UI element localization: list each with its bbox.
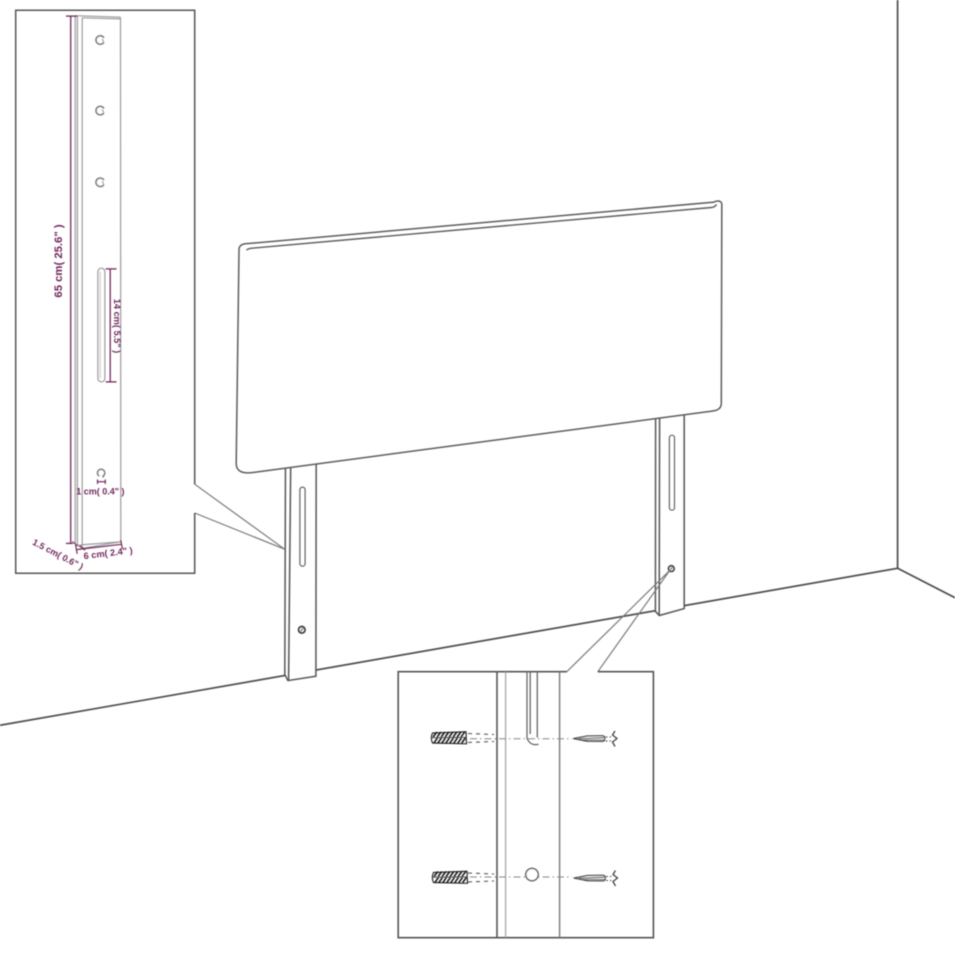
svg-text:1 cm( 0.4" ): 1 cm( 0.4" ) xyxy=(76,486,124,496)
svg-text:65 cm( 25.6" ): 65 cm( 25.6" ) xyxy=(53,224,65,297)
svg-text:14 cm( 5.5" ): 14 cm( 5.5" ) xyxy=(112,299,122,353)
